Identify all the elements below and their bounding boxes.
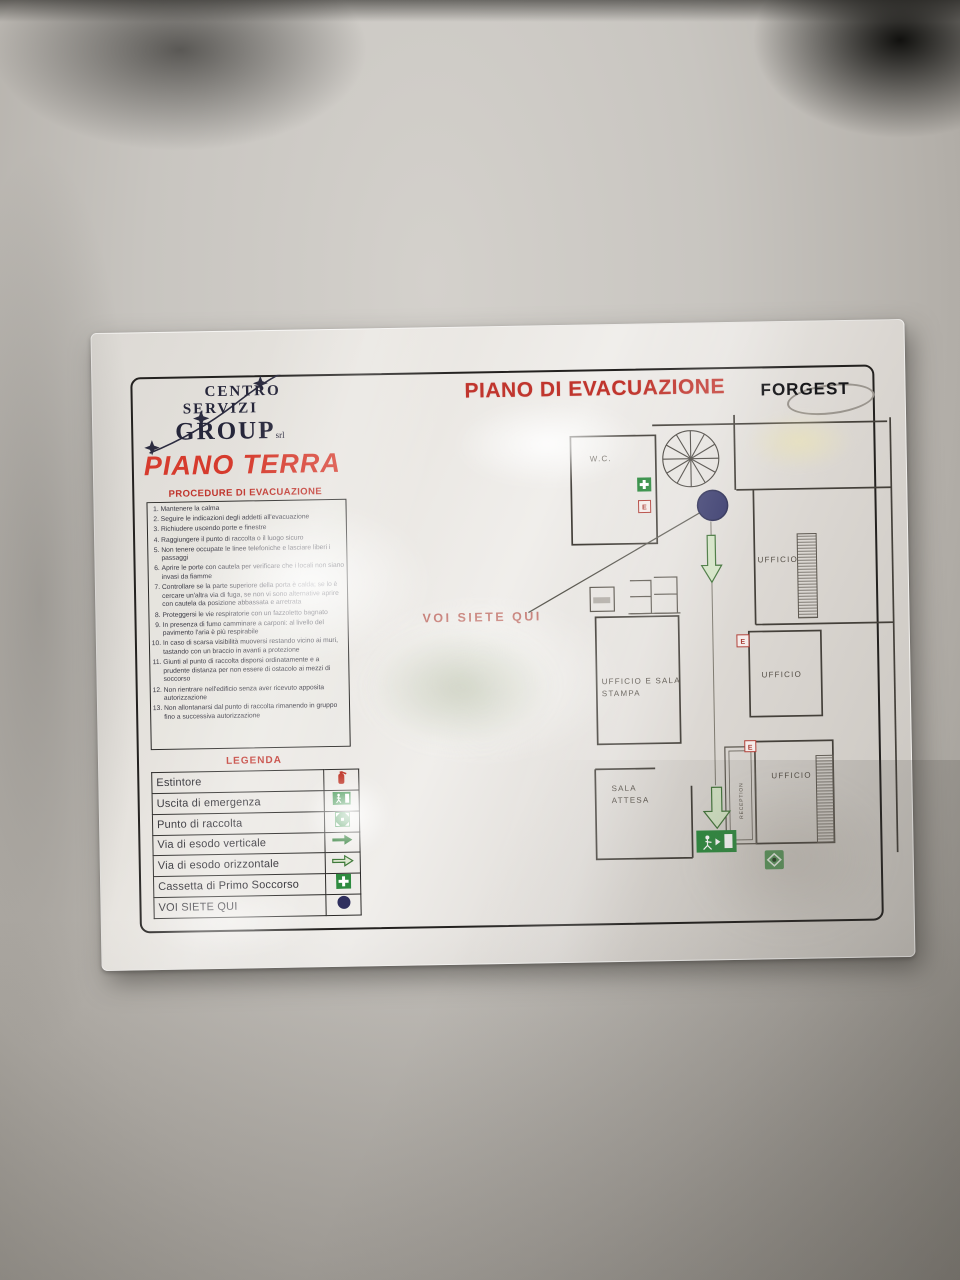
extinguisher-marker: E [737,635,749,647]
emergency-exit-icon [333,791,351,804]
legend-row: VOI SIETE QUI [154,894,361,919]
logo-text-group-word: GROUP [175,417,276,446]
procedure-item: Aprire le porte con cautela per verifica… [162,562,345,582]
fire-extinguisher-icon [333,770,349,785]
floor-title: PIANO TERRA [144,448,342,482]
legend-label: Punto di raccolta [152,811,324,835]
evacuation-path [527,505,718,788]
procedure-item: Non tenere occupate le linee telefoniche… [161,543,344,563]
extinguisher-marker: E [745,741,756,752]
you-are-here-dot-icon [336,894,351,909]
svg-text:E: E [748,745,753,752]
wall-shadow-top [0,0,960,22]
exit-arrow-down-top [701,535,722,582]
legend-table: Estintore Uscita di emergenza Punto di r… [151,769,362,919]
room-label-press-line1: UFFICIO E SALA [602,676,681,686]
spiral-staircase-icon [662,430,719,487]
logo-text-group: GROUPsrl [175,417,285,447]
room-label-waiting-line2: ATTESA [612,795,650,805]
you-are-here-text: VOI SIETE QUI [422,609,542,625]
procedure-item: Non rientrare nell'edificio senza aver r… [164,683,347,703]
floor-plan: VOI SIETE QUI E E E [417,392,908,892]
procedure-item: Controllare se la parte superiore della … [162,581,345,610]
logo-text-centro: CENTRO [204,383,280,401]
room-label-wc: W.C. [590,454,612,463]
evacuation-poster: CENTRO SERVIZI GROUPsrl PIANO DI EVACUAZ… [90,319,915,971]
extinguisher-marker: E [639,500,651,512]
room-label-reception: RECEPTION [738,782,745,818]
procedure-item: Giunti al punto di raccolta disporsi ord… [163,656,346,685]
procedure-item: In caso di scarsa visibilità muoversi re… [163,637,346,657]
first-aid-cross-icon [335,873,350,888]
logo-text-srl: srl [275,430,284,440]
svg-text:E: E [740,639,745,646]
procedures-list: Mantenere la calma Seguire le indicazion… [148,503,348,723]
legend-label: Estintore [152,770,324,794]
procedure-item: Non allontanarsi dal punto di raccolta r… [164,702,347,722]
outline-green-arrow-icon [332,854,354,866]
solid-green-arrow-icon [331,834,353,846]
assembly-point-icon [334,811,349,826]
emergency-exit-sign-icon [696,830,736,853]
wall-photo: CENTRO SERVIZI GROUPsrl PIANO DI EVACUAZ… [0,0,960,1280]
room-label-press-line2: STAMPA [602,689,641,699]
room-label-office-bottom: UFFICIO [771,771,812,781]
room-label-office-mid: UFFICIO [761,670,802,680]
you-are-here-marker [697,490,728,521]
first-aid-cross-icon [637,477,651,491]
legend-label: VOI SIETE QUI [154,894,326,918]
wall-shadow-top-left [0,0,440,190]
procedure-item: In presenza di fumo camminare a carponi:… [163,618,346,638]
assembly-point-icon [765,850,784,869]
procedures-box: Mantenere la calma Seguire le indicazion… [146,499,350,750]
wall-shadow-top-right [690,0,960,180]
legend-label: Cassetta di Primo Soccorso [153,873,325,897]
svg-text:E: E [642,504,647,511]
room-label-office-top: UFFICIO [757,555,798,565]
logo-text-servizi: SERVIZI [183,400,258,418]
room-label-waiting-line1: SALA [611,784,636,793]
